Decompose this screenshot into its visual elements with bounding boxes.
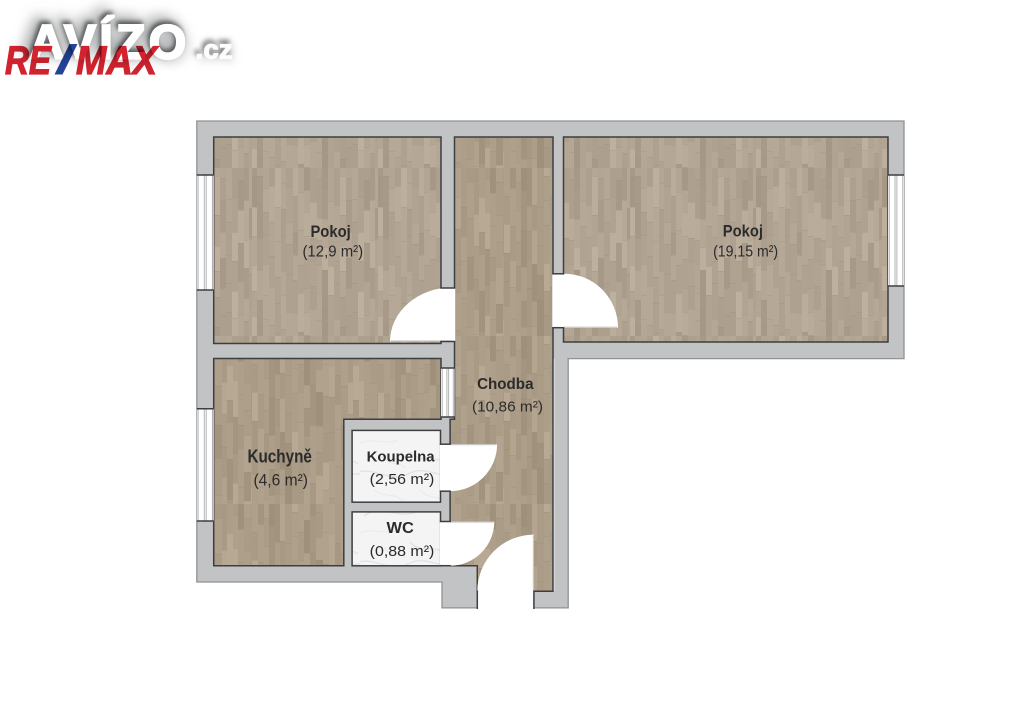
svg-text:Pokoj: Pokoj <box>723 222 763 241</box>
svg-text:(2,56 m²): (2,56 m²) <box>370 471 435 488</box>
svg-text:.cz: .cz <box>196 34 234 64</box>
svg-text:(12,9 m²): (12,9 m²) <box>302 244 363 261</box>
svg-text:(10,86 m²): (10,86 m²) <box>472 399 543 416</box>
svg-text:Pokoj: Pokoj <box>310 222 350 241</box>
svg-text:MAX: MAX <box>76 39 159 83</box>
svg-text:RE: RE <box>5 39 52 83</box>
svg-text:Kuchyně: Kuchyně <box>247 445 312 466</box>
svg-text:(0,88 m²): (0,88 m²) <box>370 543 435 560</box>
svg-text:WC: WC <box>387 520 415 537</box>
svg-text:Chodba: Chodba <box>477 376 534 393</box>
svg-text:Koupelna: Koupelna <box>367 449 436 466</box>
svg-text:(4,6 m²): (4,6 m²) <box>253 471 308 489</box>
svg-text:(19,15 m²): (19,15 m²) <box>713 243 778 260</box>
